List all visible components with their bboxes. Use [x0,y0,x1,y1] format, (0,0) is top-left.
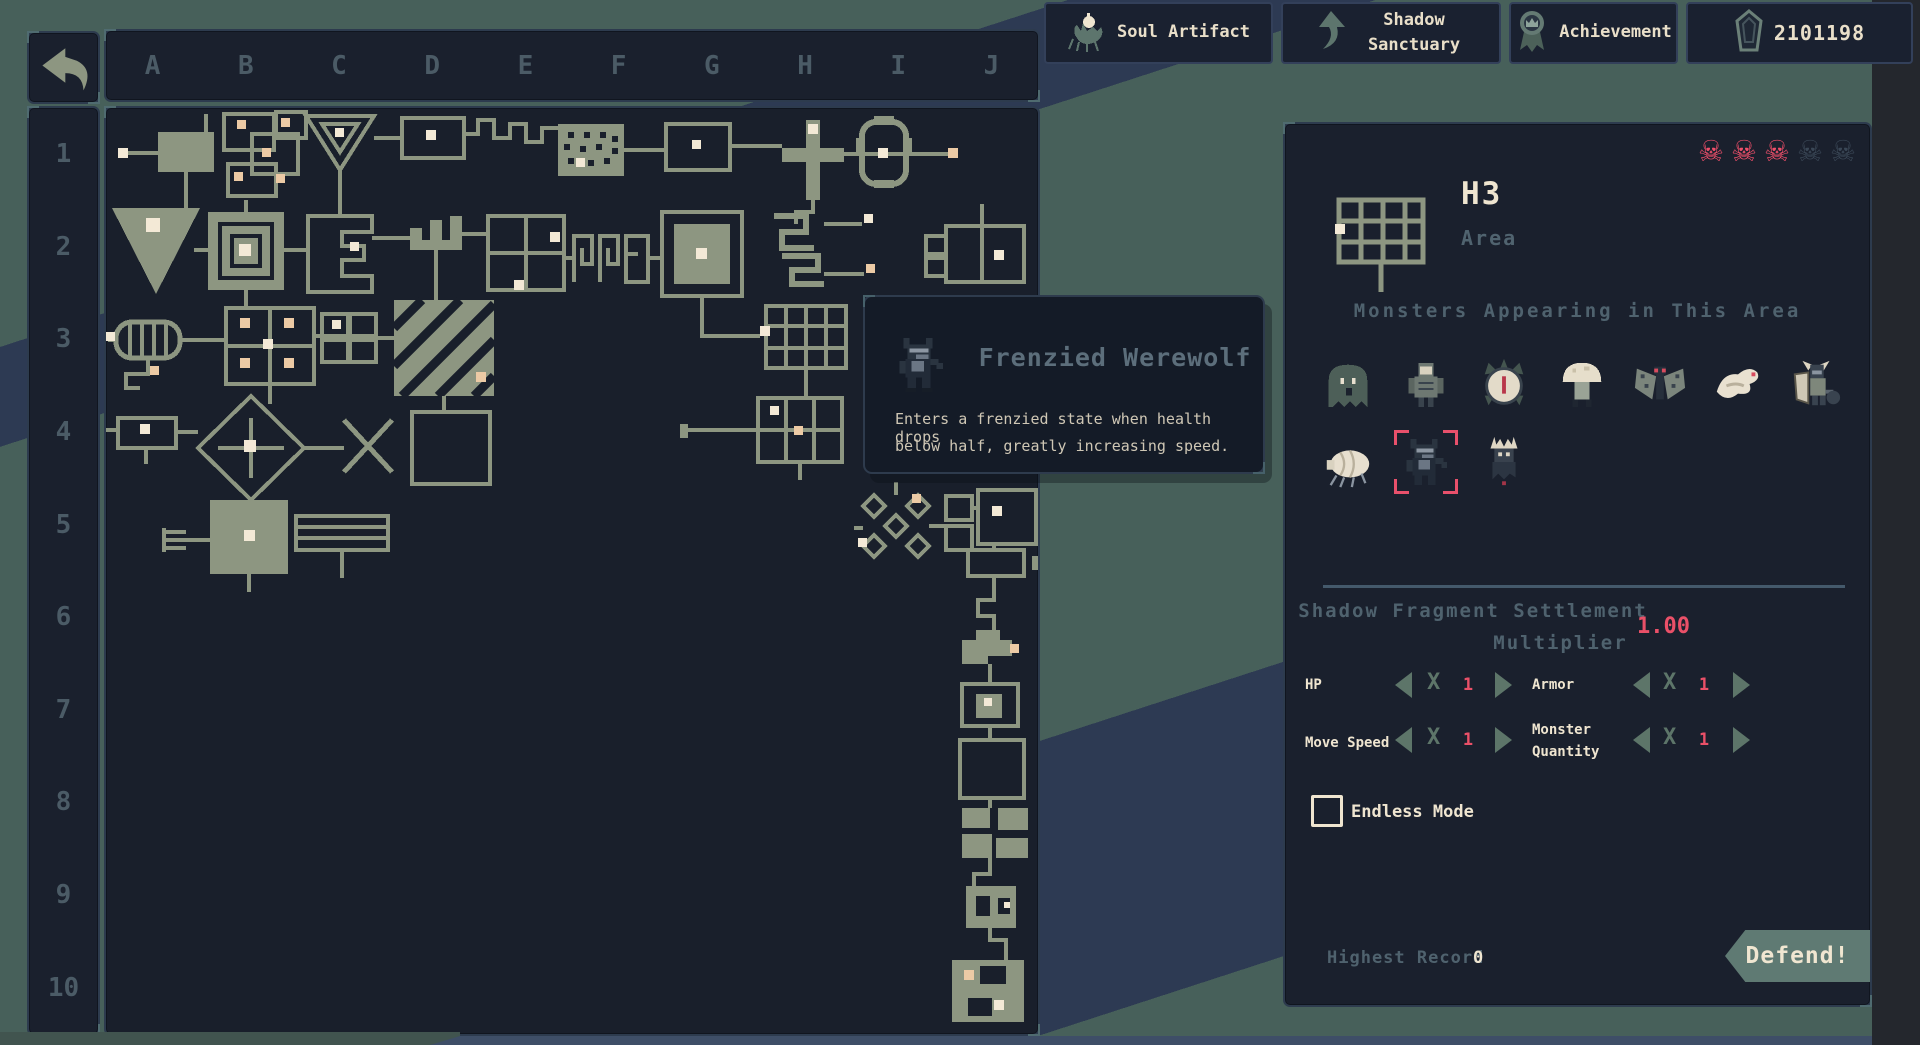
move-speed-multiply-sign: X [1427,725,1440,750]
move-speed-multiplier-value: 1 [1457,730,1479,750]
column-label-G: G [665,51,758,81]
move-speed-decrease-arrow[interactable] [1395,727,1412,753]
danger-skulls: ☠☠☠☠☠ [1698,134,1856,169]
endless-mode-label: Endless Mode [1351,802,1474,822]
skull-icon: ☠ [1830,134,1856,169]
gem-icon [1734,8,1764,59]
bottom-accent-strip [430,1036,1920,1045]
defend-button[interactable]: Defend! [1725,930,1870,982]
area-title: H3 [1461,176,1502,212]
spike-orb-monster-icon[interactable] [1472,352,1536,416]
armor-label: Armor [1532,677,1574,693]
move-speed-increase-arrow[interactable] [1495,727,1512,753]
area-subtitle: Area [1461,226,1517,250]
endless-mode-checkbox[interactable] [1311,795,1343,827]
moth-monster-icon[interactable] [1628,352,1692,416]
monster-quantity-increase-arrow[interactable] [1733,727,1750,753]
skull-icon: ☠ [1731,134,1757,169]
area-detail-panel: ☠☠☠☠☠ H3 Area Monsters Appearing in This… [1283,122,1872,1007]
monsters-header: Monsters Appearing in This Area [1285,300,1870,322]
row-label-1: 1 [56,108,72,201]
brute-monster-icon[interactable] [1394,352,1458,416]
bone-bird-monster-icon[interactable] [1706,352,1770,416]
move-speed-label: Move Speed [1305,735,1389,751]
right-edge-strip [1872,0,1920,1045]
column-header: ABCDEFGHIJ [104,29,1040,102]
monster-tooltip: Frenzied Werewolf Enters a frenzied stat… [863,295,1265,474]
soul-artifact-button[interactable]: Soul Artifact [1044,2,1273,64]
row-label-9: 9 [56,849,72,942]
row-header: 12345678910 [27,106,100,1036]
game-screen: Soul Artifact Shadow Sanctuary Achieveme… [0,0,1920,1045]
medal-icon [1515,8,1549,59]
hp-decrease-arrow[interactable] [1395,672,1412,698]
skull-icon: ☠ [1764,134,1790,169]
area-map-thumbnail-icon [1335,196,1427,300]
monster-quantity-label: Monster Quantity [1532,720,1624,763]
defend-button-label: Defend! [1746,943,1850,969]
highest-record-label: Highest Record [1327,948,1484,968]
achievement-label: Achievement [1559,20,1672,46]
column-label-H: H [758,51,851,81]
shade-monster-icon[interactable] [1316,352,1380,416]
row-label-6: 6 [56,571,72,664]
mushroom-monster-icon[interactable] [1550,352,1614,416]
settlement-title-line1: Shadow Fragment Settlement [1293,600,1653,622]
column-label-J: J [945,51,1038,81]
hp-increase-arrow[interactable] [1495,672,1512,698]
settlement-multiplier-value: 1.00 [1637,614,1690,639]
row-label-2: 2 [56,201,72,294]
horned-knight-monster-icon[interactable] [1784,352,1848,416]
skull-icon: ☠ [1797,134,1823,169]
column-label-D: D [386,51,479,81]
column-label-I: I [852,51,945,81]
monster-quantity-multiplier-value: 1 [1693,730,1715,750]
shadow-sanctuary-label: Shadow Sanctuary [1359,8,1469,59]
world-map-graphic [106,108,1038,1034]
column-label-E: E [479,51,572,81]
column-label-C: C [292,51,385,81]
world-map[interactable] [104,106,1040,1036]
tooltip-description-line2: below half, greatly increasing speed. [895,437,1229,455]
tooltip-monster-name: Frenzied Werewolf [975,343,1255,372]
row-label-5: 5 [56,478,72,571]
row-label-7: 7 [56,664,72,757]
frenzied-werewolf-icon[interactable] [1394,430,1458,494]
hp-multiplier-value: 1 [1457,675,1479,695]
armor-decrease-arrow[interactable] [1633,672,1650,698]
crowned-wraith-monster-icon[interactable] [1472,430,1536,494]
row-label-3: 3 [56,293,72,386]
monster-quantity-multiply-sign: X [1663,725,1676,750]
row-label-8: 8 [56,756,72,849]
settlement-title-line2: Multiplier [1293,632,1828,654]
armor-increase-arrow[interactable] [1733,672,1750,698]
monster-quantity-decrease-arrow[interactable] [1633,727,1650,753]
highest-record-value: 0 [1473,948,1483,968]
skull-icon: ☠ [1698,134,1724,169]
achievement-button[interactable]: Achievement [1509,2,1678,64]
row-label-4: 4 [56,386,72,479]
currency-value: 2101198 [1774,18,1865,48]
currency-display[interactable]: 2101198 [1686,2,1913,64]
hp-multiply-sign: X [1427,670,1440,695]
row-label-10: 10 [48,941,79,1034]
column-label-F: F [572,51,665,81]
column-label-A: A [106,51,199,81]
section-divider [1323,585,1845,588]
back-button[interactable] [27,31,100,104]
armor-multiply-sign: X [1663,670,1676,695]
shadow-sanctuary-button[interactable]: Shadow Sanctuary [1281,2,1501,64]
soul-hand-icon [1067,9,1107,58]
hp-label: HP [1305,677,1322,693]
bottom-strip [0,1032,460,1045]
frenzied-werewolf-icon [891,329,949,397]
column-label-B: B [199,51,292,81]
ascend-arrow-icon [1313,9,1349,58]
louse-monster-icon[interactable] [1316,430,1380,494]
armor-multiplier-value: 1 [1693,675,1715,695]
soul-artifact-label: Soul Artifact [1117,20,1250,46]
